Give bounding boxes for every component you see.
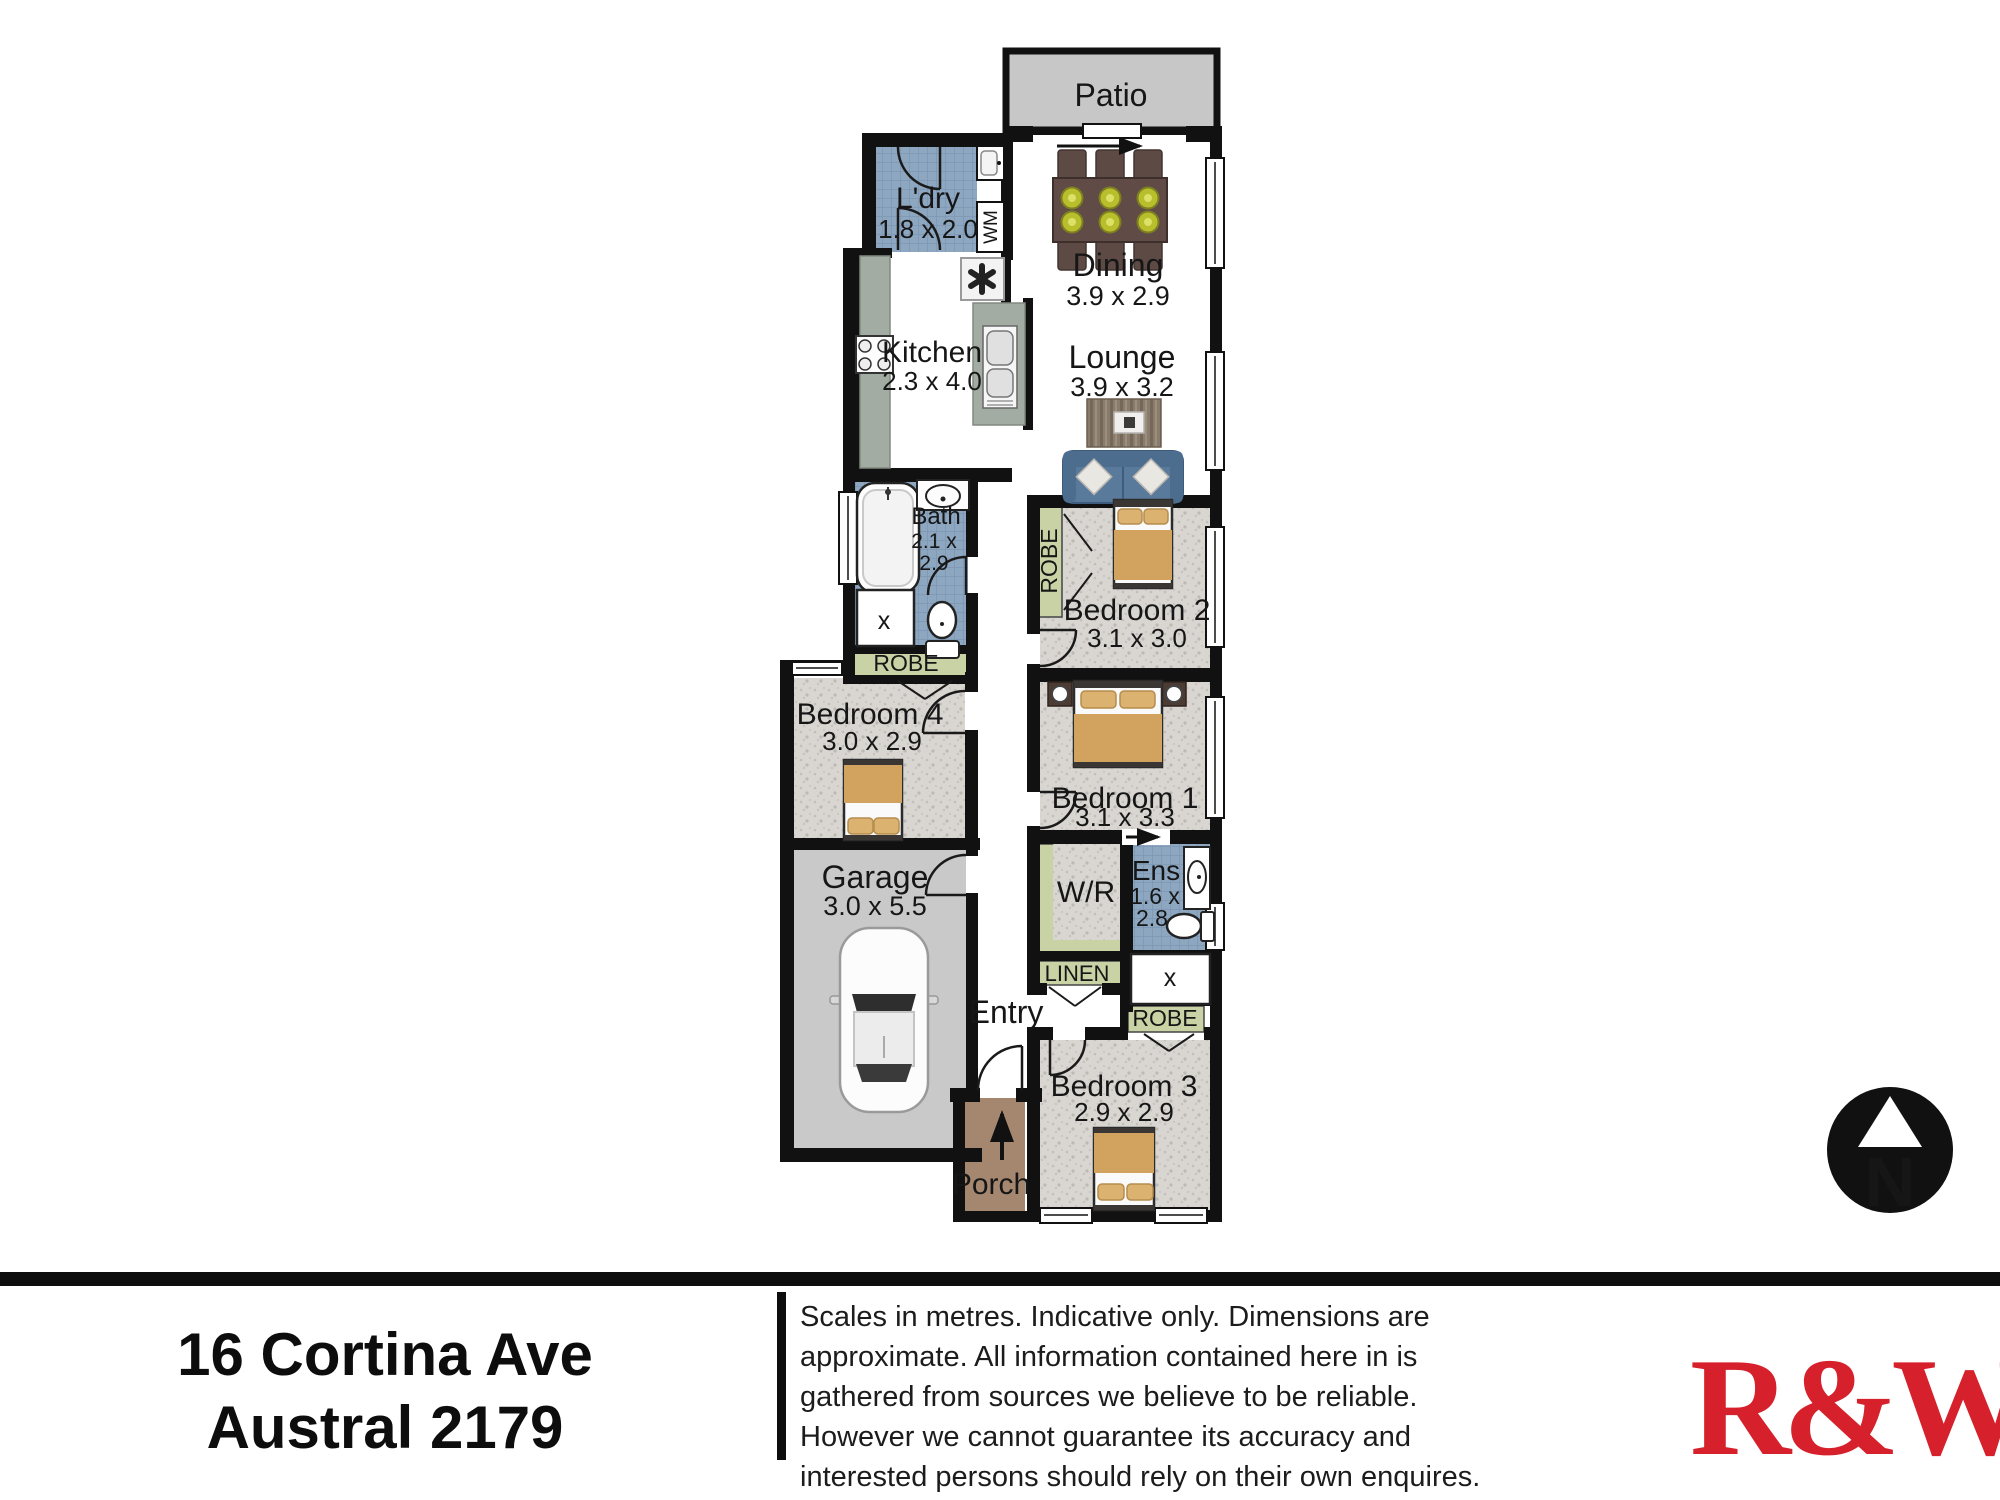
door-arc bbox=[978, 1046, 1022, 1090]
dining-label: Dining bbox=[1073, 247, 1164, 283]
entry-label: Entry bbox=[969, 994, 1044, 1030]
washing-machine-label: WM bbox=[981, 210, 1002, 244]
ensuite-dims-2: 2.8 bbox=[1136, 905, 1168, 931]
basin-icon bbox=[1184, 847, 1210, 909]
lounge-label: Lounge bbox=[1069, 339, 1176, 375]
north-label: N bbox=[1865, 1143, 1916, 1221]
disclaimer-line: However we cannot guarantee its accuracy… bbox=[800, 1417, 1480, 1457]
hot-water-unit-icon bbox=[961, 258, 1004, 300]
robe-label: ROBE bbox=[1132, 1005, 1197, 1031]
car-icon bbox=[830, 928, 938, 1112]
walkin-robe-label: W/R bbox=[1057, 876, 1115, 909]
robe-label: ROBE bbox=[873, 650, 938, 676]
garage-dims: 3.0 x 5.5 bbox=[823, 891, 927, 921]
address-line-1: 16 Cortina Ave bbox=[90, 1318, 680, 1391]
bedroom4-dims: 3.0 x 2.9 bbox=[822, 726, 922, 756]
address-line-2: Austral 2179 bbox=[90, 1391, 680, 1464]
bedroom3-dims: 2.9 x 2.9 bbox=[1074, 1097, 1174, 1127]
bath-dims-1: 2.1 x bbox=[911, 530, 957, 553]
sink-icon bbox=[983, 326, 1017, 408]
window bbox=[1206, 158, 1224, 268]
north-arrow-icon: N bbox=[1827, 1087, 1953, 1221]
window bbox=[1206, 352, 1224, 470]
window bbox=[792, 662, 842, 675]
linen-label: LINEN bbox=[1045, 961, 1110, 986]
bed-icon bbox=[844, 760, 902, 840]
kitchen-dims: 2.3 x 4.0 bbox=[882, 366, 982, 396]
dining-dims: 3.9 x 2.9 bbox=[1066, 281, 1170, 311]
sofa-icon bbox=[1063, 451, 1183, 503]
disclaimer-text: Scales in metres. Indicative only. Dimen… bbox=[800, 1297, 1480, 1497]
bath-label: Bath bbox=[911, 503, 960, 530]
floorplan-page: WM x bbox=[0, 0, 2000, 1500]
bathtub-icon bbox=[857, 483, 919, 593]
laundry-fittings: WM bbox=[977, 146, 1004, 252]
bed-icon bbox=[1094, 1128, 1154, 1210]
rug-icon bbox=[1087, 399, 1161, 447]
property-address: 16 Cortina Ave Austral 2179 bbox=[90, 1318, 680, 1464]
disclaimer-line: gathered from sources we believe to be r… bbox=[800, 1377, 1480, 1417]
toilet-icon bbox=[1167, 912, 1214, 941]
agency-logo: R&W bbox=[1690, 1338, 2000, 1478]
kitchen-label: Kitchen bbox=[882, 336, 982, 369]
robe-label: ROBE bbox=[1036, 528, 1062, 593]
sliding-door bbox=[1083, 124, 1141, 138]
disclaimer-line: interested persons should rely on their … bbox=[800, 1457, 1480, 1497]
window bbox=[1206, 697, 1224, 818]
laundry-label: L'dry bbox=[896, 182, 960, 215]
footer-divider-bar bbox=[0, 1272, 2000, 1286]
disclaimer-line: approximate. All information contained h… bbox=[800, 1337, 1480, 1377]
porch-label: Porch bbox=[952, 1168, 1030, 1201]
patio-label: Patio bbox=[1075, 77, 1148, 113]
bed-icon bbox=[1114, 500, 1172, 588]
window bbox=[1040, 1208, 1092, 1223]
bedroom1-dims: 3.1 x 3.3 bbox=[1075, 802, 1175, 832]
laundry-tub-icon bbox=[977, 146, 1004, 180]
disclaimer-line: Scales in metres. Indicative only. Dimen… bbox=[800, 1297, 1480, 1337]
garage-label: Garage bbox=[822, 859, 929, 895]
ensuite-label: Ens bbox=[1132, 855, 1180, 886]
bath-dims-2: 2.9 bbox=[919, 552, 948, 575]
window bbox=[1155, 1208, 1207, 1223]
bifold-door bbox=[1049, 987, 1101, 1006]
floor-plan: WM x bbox=[0, 0, 2000, 1265]
bedroom2-dims: 3.1 x 3.0 bbox=[1087, 623, 1187, 653]
shower-x-label: x bbox=[878, 607, 891, 635]
window bbox=[1206, 527, 1224, 647]
shower-x-label: x bbox=[1164, 964, 1177, 992]
window bbox=[839, 492, 857, 584]
footer-vertical-divider bbox=[777, 1292, 786, 1460]
lounge-dims: 3.9 x 3.2 bbox=[1070, 372, 1174, 402]
laundry-dims: 1.8 x 2.0 bbox=[878, 214, 978, 244]
